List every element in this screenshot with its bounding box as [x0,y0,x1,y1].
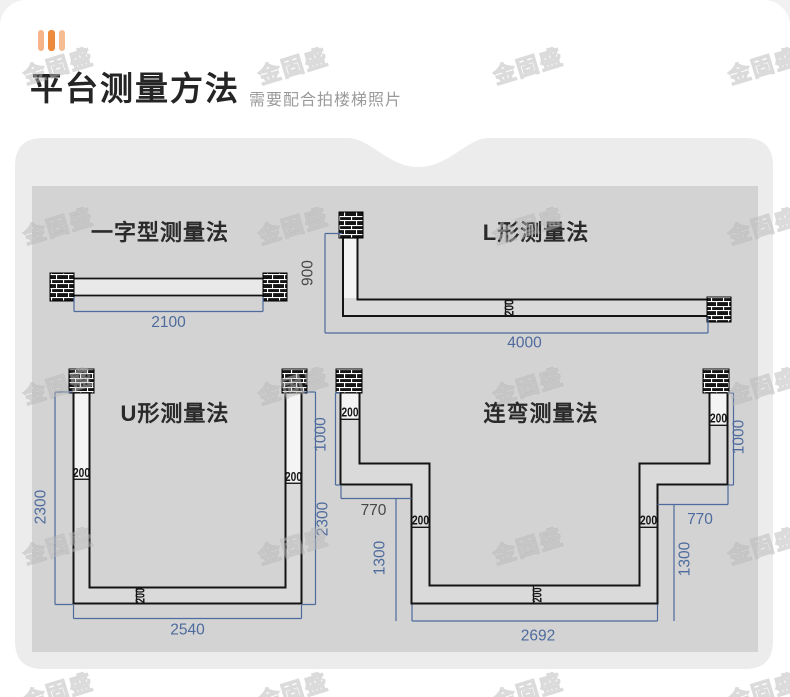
wall-brick [282,369,307,393]
dim-bottom: 2692 [521,628,555,645]
diagram-straight-title: 一字型测量法 [91,220,229,245]
page-subtitle: 需要配合拍楼梯照片 [249,86,402,110]
wall-brick [69,369,94,393]
rail-width-label: 200 [412,513,429,528]
wall-brick [263,273,287,301]
diagram-bend-title: 连弯测量法 [483,401,598,426]
rail-width-label: 200 [342,405,359,420]
dim-height: 900 [300,260,317,286]
header: 平台测量方法 需要配合拍楼梯照片 [0,0,790,135]
dim-right-step: 770 [687,511,713,528]
dim-right-height: 1000 [731,419,748,454]
rail-width-label: 200 [133,588,148,603]
accent-bars-icon [38,30,65,51]
dim-left-height: 1000 [313,417,330,452]
wall-brick [707,297,731,322]
dim-length: 4000 [507,335,542,352]
rail-width-label: 200 [640,513,657,528]
wall-brick [703,369,729,393]
page: 平台测量方法 需要配合拍楼梯照片 一字型测量法 2100 [0,0,790,697]
dim-left-height: 2300 [33,489,50,524]
wall-brick [336,369,362,393]
rail-width-label: 200 [710,411,727,426]
dim-right-height: 2300 [315,501,332,536]
dim-left-step: 770 [361,502,387,519]
diagram-u-title: U形测量法 [121,401,230,426]
wall-brick [50,273,74,301]
dim-bottom: 2540 [170,622,205,639]
page-title: 平台测量方法 [30,62,240,110]
rail-width-label: 200 [285,469,302,484]
rail-width-label: 200 [530,588,545,603]
dim-length: 2100 [151,314,186,331]
wall-brick [339,212,363,238]
dim-right-drop: 1300 [677,541,694,576]
dim-left-drop: 1300 [372,540,389,575]
rail-width-label: 200 [502,299,517,316]
diagram-l-title: L形测量法 [483,220,589,245]
rail-width-label: 200 [73,465,90,480]
